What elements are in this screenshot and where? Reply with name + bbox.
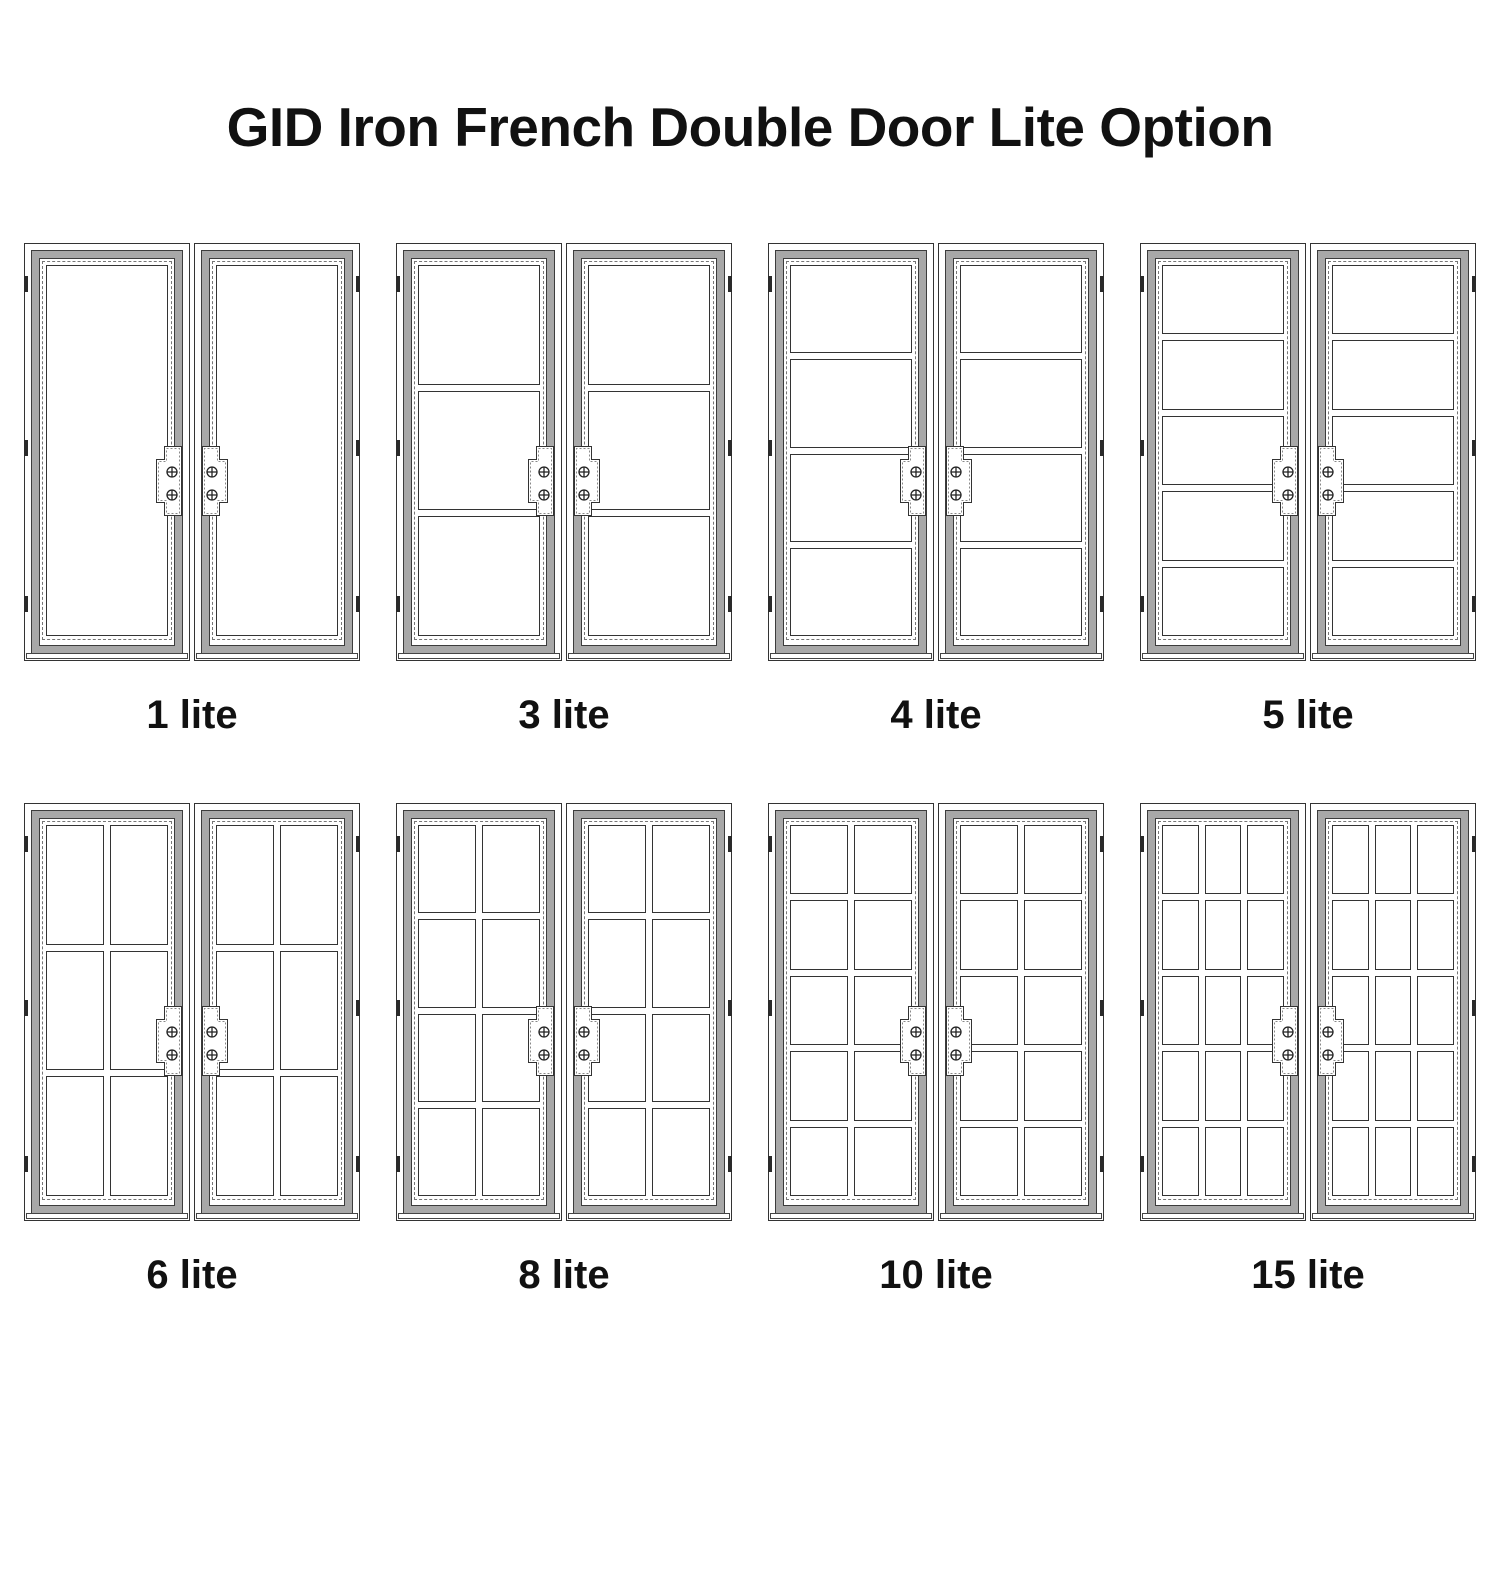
handle-plate-outline <box>901 447 926 516</box>
handle-plate <box>202 1006 228 1076</box>
double-door-diagram-10-lite <box>768 803 1104 1221</box>
glass-pane <box>1375 1127 1412 1196</box>
handle-plate <box>574 446 600 516</box>
screw-icon <box>951 467 962 478</box>
handle-plate-icon <box>202 1006 228 1076</box>
bottom-sill <box>770 1213 932 1219</box>
hinge-mark <box>1472 836 1476 852</box>
door-option-6-lite: 6 lite <box>24 803 360 1299</box>
glass-pane <box>588 265 710 385</box>
hinge-mark <box>728 440 732 456</box>
glass-pane <box>1162 340 1284 409</box>
bottom-sill <box>196 653 358 659</box>
glass-pane <box>588 825 646 913</box>
glass-pane <box>1332 825 1369 894</box>
glass-pane <box>790 976 848 1045</box>
door-leaf-right <box>194 803 360 1221</box>
handle-plate-outline <box>1319 1007 1344 1076</box>
screw-icon <box>1283 1050 1294 1061</box>
page: GID Iron French Double Door Lite Option … <box>0 94 1500 1594</box>
glass-pane <box>110 1076 168 1196</box>
glass-grid <box>960 265 1082 636</box>
handle-plate <box>1272 1006 1298 1076</box>
glass-grid <box>46 825 168 1196</box>
glass-pane <box>790 900 848 969</box>
hinge-mark <box>768 836 772 852</box>
door-leaf-left <box>1140 803 1306 1221</box>
screw-icon <box>911 1027 922 1038</box>
handle-plate-icon <box>946 1006 972 1076</box>
handle-plate <box>900 446 926 516</box>
hinge-mark <box>356 1156 360 1172</box>
hinge-mark <box>1100 1156 1104 1172</box>
screw-icon <box>579 1027 590 1038</box>
glass-pane <box>1024 1051 1082 1120</box>
glass-grid <box>216 265 338 636</box>
screw-icon <box>167 1027 178 1038</box>
bottom-sill <box>1312 1213 1474 1219</box>
glass-pane <box>418 919 476 1007</box>
hinge-mark <box>1140 276 1144 292</box>
handle-plate <box>574 1006 600 1076</box>
page-title: GID Iron French Double Door Lite Option <box>0 94 1500 160</box>
screw-icon <box>207 490 218 501</box>
hinge-mark <box>1472 1000 1476 1016</box>
glass-pane <box>1375 1051 1412 1120</box>
hinge-mark <box>356 276 360 292</box>
handle-plate-outline <box>157 447 182 516</box>
glass-pane <box>110 825 168 945</box>
door-option-10-lite: 10 lite <box>768 803 1104 1299</box>
bottom-sill <box>398 1213 560 1219</box>
screw-icon <box>167 467 178 478</box>
glass-pane <box>854 1127 912 1196</box>
glass-pane <box>1417 976 1454 1045</box>
double-door-diagram-1-lite <box>24 243 360 661</box>
handle-plate <box>156 1006 182 1076</box>
door-leaf-right <box>194 243 360 661</box>
handle-plate-icon <box>574 446 600 516</box>
double-door-diagram-8-lite <box>396 803 732 1221</box>
door-option-15-lite: 15 lite <box>1140 803 1476 1299</box>
door-option-label: 8 lite <box>518 1251 609 1299</box>
glass-pane <box>1247 1127 1284 1196</box>
handle-plate-outline <box>1319 447 1344 516</box>
bottom-sill <box>1142 653 1304 659</box>
glass-pane <box>790 454 912 542</box>
screw-icon <box>539 467 550 478</box>
glass-pane <box>1332 265 1454 334</box>
handle-plate-icon <box>1272 446 1298 516</box>
door-leaf-right <box>938 243 1104 661</box>
glass-pane <box>790 825 848 894</box>
screw-icon <box>579 490 590 501</box>
bottom-sill <box>1142 1213 1304 1219</box>
screw-icon <box>579 1050 590 1061</box>
door-leaf-right <box>938 803 1104 1221</box>
screw-icon <box>207 467 218 478</box>
glass-pane <box>652 825 710 913</box>
screw-icon <box>1323 1050 1334 1061</box>
glass-pane <box>418 825 476 913</box>
screw-icon <box>167 1050 178 1061</box>
hinge-mark <box>1140 440 1144 456</box>
hinge-mark <box>396 1000 400 1016</box>
handle-plate <box>156 446 182 516</box>
glass-pane <box>482 919 540 1007</box>
bottom-sill <box>196 1213 358 1219</box>
handle-plate <box>528 1006 554 1076</box>
screw-icon <box>951 1050 962 1061</box>
double-door-diagram-3-lite <box>396 243 732 661</box>
hinge-mark <box>1140 836 1144 852</box>
handle-plate-icon <box>900 446 926 516</box>
handle-plate-icon <box>156 446 182 516</box>
glass-pane <box>588 391 710 511</box>
glass-pane <box>960 825 1018 894</box>
glass-pane <box>960 359 1082 447</box>
bottom-sill <box>568 1213 730 1219</box>
glass-grid <box>790 825 912 1196</box>
glass-pane <box>418 516 540 636</box>
hinge-mark <box>24 836 28 852</box>
glass-grid <box>216 825 338 1196</box>
glass-pane <box>1162 976 1199 1045</box>
glass-grid <box>1162 825 1284 1196</box>
glass-pane <box>216 265 338 636</box>
hinge-mark <box>1472 596 1476 612</box>
handle-plate-outline <box>901 1007 926 1076</box>
bottom-sill <box>568 653 730 659</box>
glass-pane <box>1417 1127 1454 1196</box>
hinge-mark <box>356 596 360 612</box>
glass-pane <box>280 1076 338 1196</box>
glass-pane <box>1162 491 1284 560</box>
glass-pane <box>1162 416 1284 485</box>
bottom-sill <box>940 653 1102 659</box>
handle-plate <box>1318 1006 1344 1076</box>
glass-pane <box>46 951 104 1071</box>
door-leaf-left <box>396 243 562 661</box>
handle-plate-outline <box>1273 447 1298 516</box>
hinge-mark <box>768 440 772 456</box>
glass-pane <box>1417 825 1454 894</box>
hinge-mark <box>396 1156 400 1172</box>
glass-pane <box>1205 1127 1242 1196</box>
glass-pane <box>1332 900 1369 969</box>
glass-pane <box>216 1076 274 1196</box>
hinge-mark <box>396 440 400 456</box>
screw-icon <box>539 1027 550 1038</box>
hinge-mark <box>396 836 400 852</box>
handle-plate-outline <box>947 447 972 516</box>
glass-grid <box>1332 265 1454 636</box>
glass-pane <box>960 454 1082 542</box>
handle-plate <box>1318 446 1344 516</box>
door-leaf-left <box>1140 243 1306 661</box>
screw-icon <box>1283 1027 1294 1038</box>
hinge-mark <box>396 596 400 612</box>
glass-grid <box>588 265 710 636</box>
glass-pane <box>46 265 168 636</box>
screw-icon <box>951 1027 962 1038</box>
handle-plate-outline <box>575 447 600 516</box>
glass-pane <box>588 1108 646 1196</box>
glass-pane <box>1375 825 1412 894</box>
handle-plate <box>1272 446 1298 516</box>
hinge-mark <box>1100 440 1104 456</box>
glass-pane <box>854 825 912 894</box>
glass-pane <box>652 919 710 1007</box>
glass-pane <box>790 548 912 636</box>
screw-icon <box>911 467 922 478</box>
door-option-3-lite: 3 lite <box>396 243 732 739</box>
handle-plate-icon <box>574 1006 600 1076</box>
glass-pane <box>1162 1127 1199 1196</box>
glass-pane <box>960 900 1018 969</box>
handle-plate-icon <box>946 446 972 516</box>
hinge-mark <box>1100 836 1104 852</box>
door-options-grid: 1 lite 3 lite 4 lite 5 lite 6 lite 8 lit… <box>24 243 1476 1299</box>
glass-grid <box>418 825 540 1196</box>
handle-plate <box>946 1006 972 1076</box>
hinge-mark <box>768 276 772 292</box>
glass-grid <box>418 265 540 636</box>
handle-plate-icon <box>1272 1006 1298 1076</box>
double-door-diagram-6-lite <box>24 803 360 1221</box>
door-leaf-left <box>24 803 190 1221</box>
door-option-label: 5 lite <box>1262 691 1353 739</box>
bottom-sill <box>1312 653 1474 659</box>
glass-pane <box>1024 825 1082 894</box>
hinge-mark <box>24 1000 28 1016</box>
hinge-mark <box>1140 596 1144 612</box>
hinge-mark <box>396 276 400 292</box>
glass-pane <box>790 1127 848 1196</box>
glass-pane <box>1375 976 1412 1045</box>
hinge-mark <box>728 1156 732 1172</box>
screw-icon <box>1323 467 1334 478</box>
glass-pane <box>790 1051 848 1120</box>
glass-grid <box>588 825 710 1196</box>
glass-pane <box>418 1108 476 1196</box>
handle-plate-outline <box>529 1007 554 1076</box>
handle-plate-outline <box>947 1007 972 1076</box>
double-door-diagram-15-lite <box>1140 803 1476 1221</box>
door-option-1-lite: 1 lite <box>24 243 360 739</box>
screw-icon <box>1323 1027 1334 1038</box>
screw-icon <box>911 490 922 501</box>
glass-pane <box>1417 1051 1454 1120</box>
glass-pane <box>1205 1051 1242 1120</box>
handle-plate-icon <box>156 1006 182 1076</box>
screw-icon <box>539 1050 550 1061</box>
glass-pane <box>790 265 912 353</box>
screw-icon <box>579 467 590 478</box>
hinge-mark <box>1472 440 1476 456</box>
screw-icon <box>911 1050 922 1061</box>
door-option-label: 10 lite <box>879 1251 992 1299</box>
handle-plate <box>528 446 554 516</box>
glass-pane <box>1162 900 1199 969</box>
bottom-sill <box>26 653 188 659</box>
hinge-mark <box>728 276 732 292</box>
glass-pane <box>854 900 912 969</box>
bottom-sill <box>398 653 560 659</box>
glass-pane <box>960 265 1082 353</box>
glass-pane <box>1375 900 1412 969</box>
glass-pane <box>1332 416 1454 485</box>
door-leaf-right <box>566 243 732 661</box>
glass-pane <box>1417 900 1454 969</box>
door-option-5-lite: 5 lite <box>1140 243 1476 739</box>
hinge-mark <box>728 1000 732 1016</box>
hinge-mark <box>1140 1000 1144 1016</box>
glass-pane <box>482 1108 540 1196</box>
door-option-label: 3 lite <box>518 691 609 739</box>
screw-icon <box>1323 490 1334 501</box>
screw-icon <box>207 1027 218 1038</box>
double-door-diagram-4-lite <box>768 243 1104 661</box>
handle-plate-icon <box>900 1006 926 1076</box>
glass-pane <box>280 951 338 1071</box>
hinge-mark <box>356 836 360 852</box>
glass-pane <box>418 391 540 511</box>
hinge-mark <box>1100 596 1104 612</box>
glass-pane <box>1162 567 1284 636</box>
handle-plate-outline <box>1273 1007 1298 1076</box>
hinge-mark <box>1472 1156 1476 1172</box>
door-option-8-lite: 8 lite <box>396 803 732 1299</box>
glass-pane <box>790 359 912 447</box>
glass-pane <box>1205 900 1242 969</box>
handle-plate <box>202 446 228 516</box>
glass-pane <box>418 1014 476 1102</box>
glass-pane <box>1332 340 1454 409</box>
glass-grid <box>960 825 1082 1196</box>
glass-pane <box>1024 900 1082 969</box>
screw-icon <box>1283 490 1294 501</box>
screw-icon <box>951 490 962 501</box>
hinge-mark <box>24 596 28 612</box>
door-leaf-right <box>566 803 732 1221</box>
hinge-mark <box>768 1000 772 1016</box>
door-leaf-left <box>396 803 562 1221</box>
glass-pane <box>652 1108 710 1196</box>
glass-pane <box>1162 1051 1199 1120</box>
handle-plate-icon <box>202 446 228 516</box>
handle-plate-outline <box>529 447 554 516</box>
handle-plate-outline <box>157 1007 182 1076</box>
hinge-mark <box>356 440 360 456</box>
handle-plate-icon <box>528 1006 554 1076</box>
door-option-label: 6 lite <box>146 1251 237 1299</box>
glass-pane <box>46 1076 104 1196</box>
handle-plate-icon <box>1318 1006 1344 1076</box>
hinge-mark <box>728 836 732 852</box>
glass-pane <box>588 919 646 1007</box>
door-option-label: 1 lite <box>146 691 237 739</box>
door-leaf-right <box>1310 803 1476 1221</box>
glass-pane <box>588 516 710 636</box>
glass-pane <box>1205 825 1242 894</box>
glass-pane <box>1024 976 1082 1045</box>
double-door-diagram-5-lite <box>1140 243 1476 661</box>
glass-pane <box>1332 567 1454 636</box>
screw-icon <box>167 490 178 501</box>
glass-pane <box>280 825 338 945</box>
door-option-4-lite: 4 lite <box>768 243 1104 739</box>
handle-plate <box>946 446 972 516</box>
hinge-mark <box>768 1156 772 1172</box>
glass-pane <box>216 825 274 945</box>
hinge-mark <box>24 440 28 456</box>
handle-plate-icon <box>528 446 554 516</box>
door-leaf-left <box>24 243 190 661</box>
handle-plate <box>900 1006 926 1076</box>
bottom-sill <box>26 1213 188 1219</box>
screw-icon <box>207 1050 218 1061</box>
glass-grid <box>46 265 168 636</box>
handle-plate-icon <box>1318 446 1344 516</box>
hinge-mark <box>1472 276 1476 292</box>
hinge-mark <box>1100 276 1104 292</box>
door-option-label: 4 lite <box>890 691 981 739</box>
handle-plate-outline <box>203 1007 228 1076</box>
handle-plate-outline <box>575 1007 600 1076</box>
glass-pane <box>482 825 540 913</box>
door-leaf-right <box>1310 243 1476 661</box>
bottom-sill <box>770 653 932 659</box>
glass-pane <box>652 1014 710 1102</box>
glass-pane <box>1332 491 1454 560</box>
hinge-mark <box>728 596 732 612</box>
bottom-sill <box>940 1213 1102 1219</box>
hinge-mark <box>356 1000 360 1016</box>
handle-plate-outline <box>203 447 228 516</box>
glass-pane <box>46 825 104 945</box>
glass-pane <box>1162 825 1199 894</box>
door-option-label: 15 lite <box>1251 1251 1364 1299</box>
glass-pane <box>1205 976 1242 1045</box>
glass-pane <box>1332 1127 1369 1196</box>
glass-grid <box>1332 825 1454 1196</box>
glass-grid <box>1162 265 1284 636</box>
glass-grid <box>790 265 912 636</box>
glass-pane <box>960 1127 1018 1196</box>
glass-pane <box>1024 1127 1082 1196</box>
glass-pane <box>1247 825 1284 894</box>
hinge-mark <box>1140 1156 1144 1172</box>
glass-pane <box>960 548 1082 636</box>
glass-pane <box>418 265 540 385</box>
glass-pane <box>1247 900 1284 969</box>
hinge-mark <box>24 276 28 292</box>
door-leaf-left <box>768 243 934 661</box>
screw-icon <box>1283 467 1294 478</box>
door-leaf-left <box>768 803 934 1221</box>
hinge-mark <box>1100 1000 1104 1016</box>
screw-icon <box>539 490 550 501</box>
hinge-mark <box>768 596 772 612</box>
glass-pane <box>1162 265 1284 334</box>
hinge-mark <box>24 1156 28 1172</box>
